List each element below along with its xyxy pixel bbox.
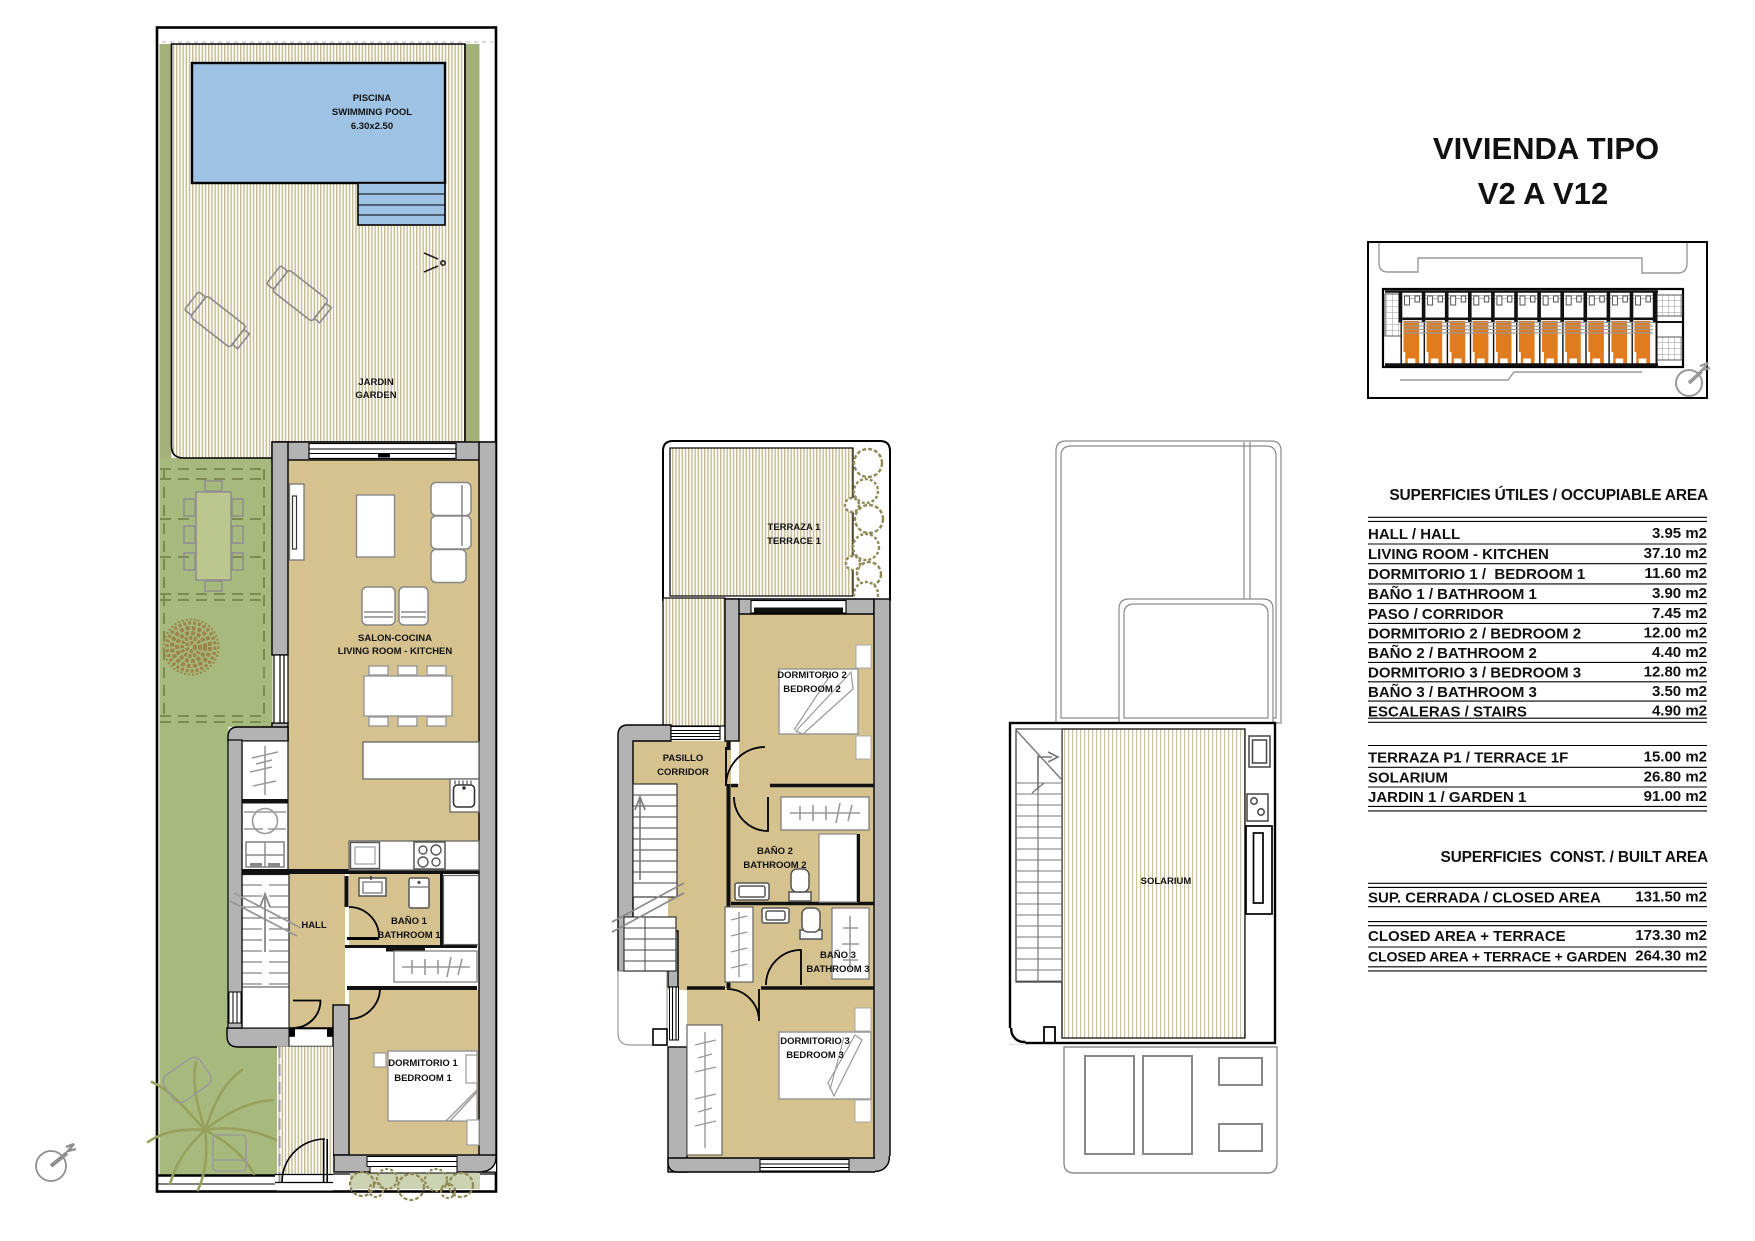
svg-text:SWIMMING POOL: SWIMMING POOL <box>332 107 412 118</box>
svg-text:SOLARIUM: SOLARIUM <box>1368 770 1448 787</box>
svg-text:HALL: HALL <box>301 920 327 931</box>
svg-text:BAÑO 2: BAÑO 2 <box>757 846 793 857</box>
svg-text:JARDIN: JARDIN <box>358 377 394 388</box>
svg-text:LIVING ROOM - KITCHEN: LIVING ROOM - KITCHEN <box>338 646 453 657</box>
svg-text:LIVING ROOM - KITCHEN: LIVING ROOM - KITCHEN <box>1368 546 1549 563</box>
svg-text:BAÑO 3: BAÑO 3 <box>820 950 856 961</box>
svg-text:SUPERFICIES CONST. / BUILT AR: SUPERFICIES CONST. / BUILT AREA <box>1441 849 1708 866</box>
svg-text:PASILLO: PASILLO <box>663 753 703 764</box>
svg-text:DORMITORIO 3 / BEDROOM 3: DORMITORIO 3 / BEDROOM 3 <box>1368 665 1581 682</box>
svg-text:15.00 m2: 15.00 m2 <box>1644 749 1707 766</box>
svg-text:JARDIN 1 / GARDEN 1: JARDIN 1 / GARDEN 1 <box>1368 789 1526 806</box>
svg-text:CORRIDOR: CORRIDOR <box>657 767 709 778</box>
svg-text:SOLARIUM: SOLARIUM <box>1141 876 1192 887</box>
svg-text:BAÑO 3 / BATHROOM 3: BAÑO 3 / BATHROOM 3 <box>1368 683 1537 701</box>
svg-text:HALL / HALL: HALL / HALL <box>1368 526 1460 543</box>
svg-text:SUP. CERRADA / CLOSED AREA: SUP. CERRADA / CLOSED AREA <box>1368 890 1601 907</box>
svg-text:DORMITORIO 2 / BEDROOM 2: DORMITORIO 2 / BEDROOM 2 <box>1368 626 1581 643</box>
svg-text:PISCINA: PISCINA <box>353 93 392 104</box>
svg-text:BAÑO 1 / BATHROOM 1: BAÑO 1 / BATHROOM 1 <box>1368 585 1537 603</box>
svg-text:173.30 m2: 173.30 m2 <box>1635 927 1707 944</box>
svg-text:PASO / CORRIDOR: PASO / CORRIDOR <box>1368 606 1504 623</box>
svg-text:BATHROOM 3: BATHROOM 3 <box>806 964 869 975</box>
svg-text:264.30 m2: 264.30 m2 <box>1635 948 1707 965</box>
svg-text:131.50 m2: 131.50 m2 <box>1635 889 1707 906</box>
svg-text:BATHROOM 1: BATHROOM 1 <box>377 930 441 941</box>
svg-text:TERRAZA P1 / TERRACE 1F: TERRAZA P1 / TERRACE 1F <box>1368 750 1568 767</box>
svg-text:3.50 m2: 3.50 m2 <box>1652 683 1707 700</box>
svg-text:V2 A V12: V2 A V12 <box>1478 176 1608 211</box>
svg-text:37.10 m2: 37.10 m2 <box>1644 545 1707 562</box>
svg-text:VIVIENDA TIPO: VIVIENDA TIPO <box>1433 131 1659 166</box>
svg-text:3.90 m2: 3.90 m2 <box>1652 585 1707 602</box>
svg-text:7.45 m2: 7.45 m2 <box>1652 605 1707 622</box>
svg-text:BEDROOM 2: BEDROOM 2 <box>783 684 841 695</box>
svg-text:SUPERFICIES ÚTILES / OCCUPIABL: SUPERFICIES ÚTILES / OCCUPIABLE AREA <box>1389 486 1708 504</box>
svg-text:26.80 m2: 26.80 m2 <box>1644 769 1707 786</box>
svg-text:BAÑO 1: BAÑO 1 <box>391 916 428 927</box>
svg-text:GARDEN: GARDEN <box>355 390 396 401</box>
svg-text:TERRACE 1: TERRACE 1 <box>767 536 822 547</box>
svg-text:SALON-COCINA: SALON-COCINA <box>358 633 432 644</box>
svg-text:12.00 m2: 12.00 m2 <box>1644 625 1707 642</box>
svg-text:4.40 m2: 4.40 m2 <box>1652 644 1707 661</box>
svg-text:CLOSED AREA + TERRACE: CLOSED AREA + TERRACE <box>1368 928 1566 945</box>
svg-text:6.30x2.50: 6.30x2.50 <box>351 121 393 132</box>
svg-text:BATHROOM 2: BATHROOM 2 <box>743 860 806 871</box>
svg-text:DORMITORIO 1: DORMITORIO 1 <box>388 1058 458 1069</box>
svg-text:CLOSED AREA + TERRACE + GARDEN: CLOSED AREA + TERRACE + GARDEN <box>1368 950 1627 966</box>
svg-text:BEDROOM 1: BEDROOM 1 <box>394 1073 452 1084</box>
svg-text:BEDROOM 3: BEDROOM 3 <box>786 1050 844 1061</box>
svg-text:BAÑO 2 / BATHROOM 2: BAÑO 2 / BATHROOM 2 <box>1368 644 1537 662</box>
svg-text:91.00 m2: 91.00 m2 <box>1644 788 1707 805</box>
svg-text:11.60 m2: 11.60 m2 <box>1644 565 1707 582</box>
svg-text:3.95 m2: 3.95 m2 <box>1652 525 1707 542</box>
svg-text:DORMITORIO 1 / BEDROOM 1: DORMITORIO 1 / BEDROOM 1 <box>1368 566 1585 583</box>
svg-text:DORMITORIO 2: DORMITORIO 2 <box>777 670 847 681</box>
svg-text:ESCALERAS / STAIRS: ESCALERAS / STAIRS <box>1368 704 1527 721</box>
svg-text:4.90 m2: 4.90 m2 <box>1652 703 1707 720</box>
svg-text:DORMITORIO 3: DORMITORIO 3 <box>780 1036 850 1047</box>
svg-text:TERRAZA 1: TERRAZA 1 <box>768 522 822 533</box>
svg-text:12.80 m2: 12.80 m2 <box>1644 664 1707 681</box>
